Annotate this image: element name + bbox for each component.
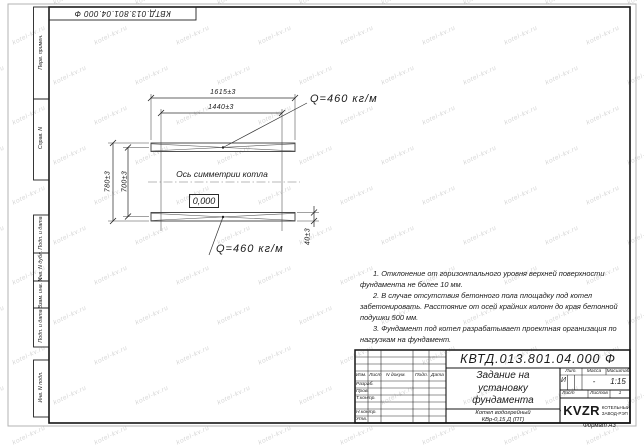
massa-label: Масса — [582, 369, 606, 374]
masshtab-value: 1:15 — [606, 377, 630, 386]
row-t-contr: Т.контр. — [356, 396, 376, 401]
header-podp: Подп. — [415, 373, 428, 378]
load-label-top: Q=460 кг/м — [310, 93, 378, 105]
titleblock-product: Котел водогрейный КВр-0,15 Д (ПТ) — [446, 410, 560, 423]
header-izm: Изм. — [356, 373, 366, 378]
masshtab-label: Масштаб — [606, 369, 630, 374]
level-mark: 0,000 — [189, 194, 219, 208]
dim-right-label: 40±3 — [305, 207, 312, 267]
titleblock-doc-number: КВТД.013.801.04.000 Ф — [446, 350, 630, 368]
company-sub: КОТЕЛЬНЫЙ ЗАВОД-РЭП — [602, 405, 630, 416]
strip-label-perv-primen: Перв. примен. — [38, 12, 44, 92]
format-label: Формат А3 — [583, 423, 616, 429]
strip-label-sprav-n: Справ. N — [38, 98, 44, 178]
company-name: KVZR — [563, 403, 600, 418]
load-label-bottom: Q=460 кг/м — [216, 243, 284, 255]
header-n-doc: N докум. — [386, 373, 406, 378]
titleblock-title: Задание на установку фундамента — [446, 370, 560, 408]
lit-label: Лит. — [560, 369, 582, 374]
dim-left-outer-label: 780±3 — [105, 152, 112, 212]
row-n-contr: Н.контр. — [356, 410, 377, 415]
row-prov: Пров. — [356, 389, 369, 394]
header-data: Дата — [431, 373, 444, 378]
row-razrab: Разраб. — [356, 382, 374, 387]
note-3: 3. Фундамент под котел разрабатывает про… — [360, 323, 618, 345]
listov-value: 1 — [610, 391, 630, 396]
strip-label-inv-podl: Инв. N подл. — [38, 347, 44, 427]
listov-label: Листов — [590, 391, 608, 396]
company-logo-cell: KVZR КОТЕЛЬНЫЙ ЗАВОД-РЭП — [560, 398, 630, 423]
dim-left-inner-label: 700±3 — [121, 152, 128, 212]
axis-label: Ось симметрии котла — [157, 169, 287, 179]
dim-top-outer-label: 1615±3 — [193, 89, 253, 96]
massa-value: - — [582, 377, 606, 386]
list-label: Лист — [562, 391, 575, 396]
notes-block: 1. Отклонение от горизонтального уровня … — [360, 268, 618, 345]
note-1: 1. Отклонение от горизонтального уровня … — [360, 268, 618, 290]
doc-number-top: КВТД.013.801.04.000 Ф — [49, 7, 196, 20]
note-2: 2. В случае отсутствия бетонного пола пл… — [360, 290, 618, 323]
kvzr-logo-icon — [560, 403, 561, 418]
dim-top-inner-label: 1440±3 — [191, 104, 251, 111]
row-utv: Утв. — [356, 417, 367, 422]
lit-value: И — [560, 377, 567, 384]
header-list: Лист — [369, 373, 382, 378]
